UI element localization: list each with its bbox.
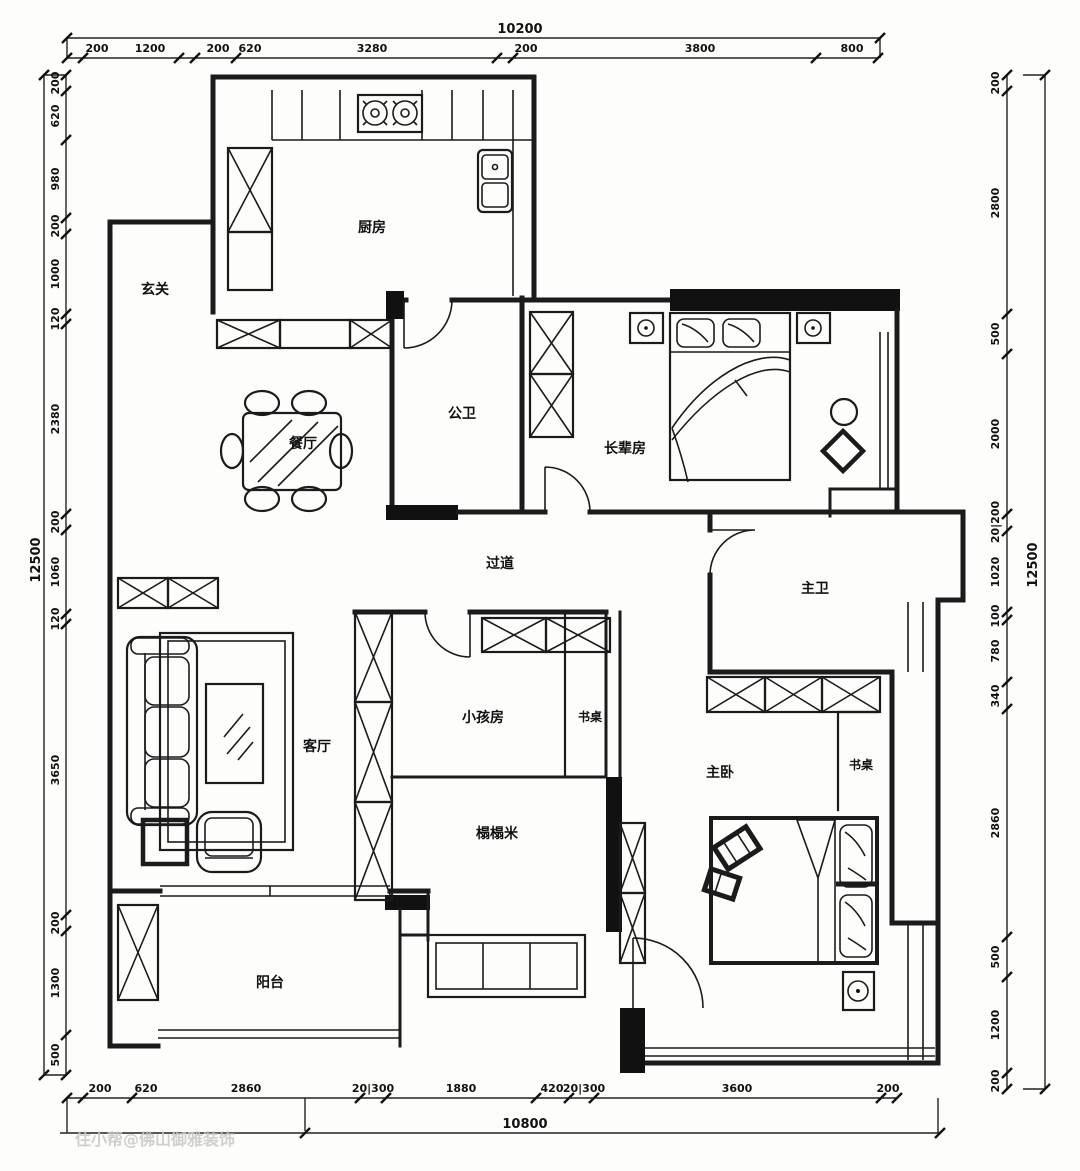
- dim-right-seg: 1200: [989, 1009, 1002, 1040]
- dining-chair: [292, 391, 326, 415]
- window-elders-right: [880, 332, 888, 490]
- door-kids-room: [425, 612, 470, 657]
- wardrobe-kids-top: [482, 618, 610, 652]
- dim-right-seg: 500: [989, 322, 1002, 345]
- dim-top-seg: 200: [207, 42, 230, 55]
- dim-bottom-seg: 200: [877, 1082, 900, 1095]
- dim-left-seg: 200: [49, 71, 62, 94]
- window-master-bottom: [645, 1048, 935, 1056]
- floor-plan-canvas: 厨房 玄关 公卫 长辈房 餐厅 过道 主卫 小孩房 书桌 客厅 榻榻米 主卧 书…: [0, 0, 1080, 1171]
- dim-right-seg: 2860: [989, 807, 1002, 838]
- dim-right-seg: 500: [989, 945, 1002, 968]
- wall-fill-bath-bottom: [386, 505, 458, 520]
- elders-room-furniture: [630, 313, 863, 482]
- dim-bottom-seg: 3600: [722, 1082, 753, 1095]
- master-bed: [704, 818, 877, 963]
- kitchen-fixtures: [272, 90, 534, 296]
- dining-chair: [245, 391, 279, 415]
- window-master-bay: [908, 925, 923, 1060]
- cabinet-living-half-wall: [118, 578, 218, 608]
- dining-chair: [221, 434, 243, 468]
- elders-bed: [670, 313, 790, 482]
- dim-top-seg: 200: [515, 42, 538, 55]
- dim-left-seg: 200: [49, 911, 62, 934]
- dim-right-seg: 340: [989, 684, 1002, 707]
- dim-bottom-seg: 2860: [231, 1082, 262, 1095]
- stove-icon: [358, 95, 422, 132]
- dim-left-seg: 120: [49, 307, 62, 330]
- watermark: 住小帮@佛山御雅装饰: [75, 1130, 235, 1149]
- label-dining: 餐厅: [288, 435, 317, 452]
- dim-right-total: 12500: [1026, 542, 1041, 587]
- dim-right-seg: 200: [989, 71, 1002, 94]
- dim-top-seg: 3280: [357, 42, 388, 55]
- label-tatami: 榻榻米: [476, 825, 519, 842]
- dim-right-seg: 2800: [989, 187, 1002, 218]
- dim-left-seg: 200: [49, 214, 62, 237]
- label-kids-desk: 书桌: [578, 709, 603, 724]
- dim-bottom-seg: 1880: [446, 1082, 477, 1095]
- dim-left-seg: 2380: [49, 403, 62, 434]
- label-entry: 玄关: [141, 281, 169, 298]
- dim-right-seg: 2000: [989, 418, 1002, 449]
- window-kids-bay: [428, 935, 585, 997]
- wardrobe-kids-left: [355, 612, 392, 900]
- dim-left-seg: 1060: [49, 556, 62, 587]
- dim-right-seg: 20|200: [989, 501, 1002, 544]
- dim-top: 10200 200 1200 200 620 3280 200 3800 800: [62, 22, 885, 63]
- ottoman-diamond: [823, 431, 863, 471]
- dim-top-total: 10200: [497, 22, 542, 37]
- dim-bottom-seg: 620: [135, 1082, 158, 1095]
- label-hallway: 过道: [486, 555, 514, 572]
- label-kids-room: 小孩房: [462, 709, 504, 726]
- cabinet-balcony: [118, 905, 158, 1000]
- dim-bottom-seg: 200: [89, 1082, 112, 1095]
- dim-right: 12500 200 2800 500 2000 20|200 1020 100 …: [989, 70, 1050, 1094]
- dim-left-seg: 620: [49, 104, 62, 127]
- wall-fill-elders-top: [670, 289, 900, 311]
- door-public-bath: [404, 300, 452, 348]
- cabinet-dining-sideboard: [217, 320, 392, 348]
- dim-left-seg: 120: [49, 607, 62, 630]
- dim-bottom-seg: 20|300: [352, 1082, 395, 1095]
- label-balcony: 阳台: [256, 974, 284, 991]
- wall-fill-bottom-left-master: [620, 1008, 645, 1073]
- coffee-table: [206, 684, 263, 783]
- label-master-bath: 主卫: [801, 580, 829, 597]
- dim-top-seg: 1200: [135, 42, 166, 55]
- dim-top-seg: 3800: [685, 42, 716, 55]
- window-balcony: [158, 1030, 400, 1038]
- dim-left-seg: 980: [49, 167, 62, 190]
- dim-right-seg: 780: [989, 639, 1002, 662]
- dim-right-seg: 1020: [989, 556, 1002, 587]
- dim-bottom-total: 10800: [502, 1117, 547, 1132]
- dim-top-seg: 200: [86, 42, 109, 55]
- sofa: [127, 637, 197, 825]
- floor-plan-page: 厨房 玄关 公卫 长辈房 餐厅 过道 主卫 小孩房 书桌 客厅 榻榻米 主卧 书…: [0, 0, 1080, 1171]
- dim-right-seg: 100: [989, 604, 1002, 627]
- dim-left-seg: 1300: [49, 967, 62, 998]
- label-living: 客厅: [302, 738, 331, 755]
- dim-bottom-seg: 20|300: [563, 1082, 606, 1095]
- interior-walls: [110, 291, 897, 1073]
- label-elders-room: 长辈房: [604, 440, 646, 457]
- living-room-furniture: [127, 633, 293, 872]
- dim-left: 12500 200 620 980 200 1000 120 2380 200 …: [29, 70, 71, 1080]
- dim-left-total: 12500: [29, 537, 44, 582]
- floor-lamp: [843, 972, 874, 1010]
- wall-fill-bath-jamb: [386, 291, 404, 319]
- side-table-round: [831, 399, 857, 425]
- door-master-bath: [710, 530, 755, 575]
- sink-icon: [478, 150, 512, 212]
- door-master-bedroom: [633, 938, 703, 1008]
- dim-left-seg: 200: [49, 510, 62, 533]
- dim-right-seg: 200: [989, 1069, 1002, 1092]
- dim-left-seg: 3650: [49, 754, 62, 785]
- shaft-beside-bath: [530, 312, 573, 437]
- label-master-bedroom: 主卧: [706, 764, 734, 781]
- dim-bottom-seg: 420: [541, 1082, 564, 1095]
- label-master-desk: 书桌: [849, 757, 874, 772]
- window-master-bath: [908, 602, 923, 672]
- label-public-bath: 公卫: [448, 406, 476, 422]
- wardrobe-master-top: [707, 677, 880, 712]
- cabinet-kitchen-left: [228, 148, 272, 290]
- dim-top-seg: 620: [239, 42, 262, 55]
- dim-left-seg: 1000: [49, 258, 62, 289]
- door-elders-room: [545, 467, 590, 512]
- dim-left-seg: 500: [49, 1043, 62, 1066]
- dim-top-seg: 800: [841, 42, 864, 55]
- label-kitchen: 厨房: [358, 219, 386, 236]
- master-bedroom-furniture: [704, 712, 877, 1010]
- dining-set: [221, 391, 352, 511]
